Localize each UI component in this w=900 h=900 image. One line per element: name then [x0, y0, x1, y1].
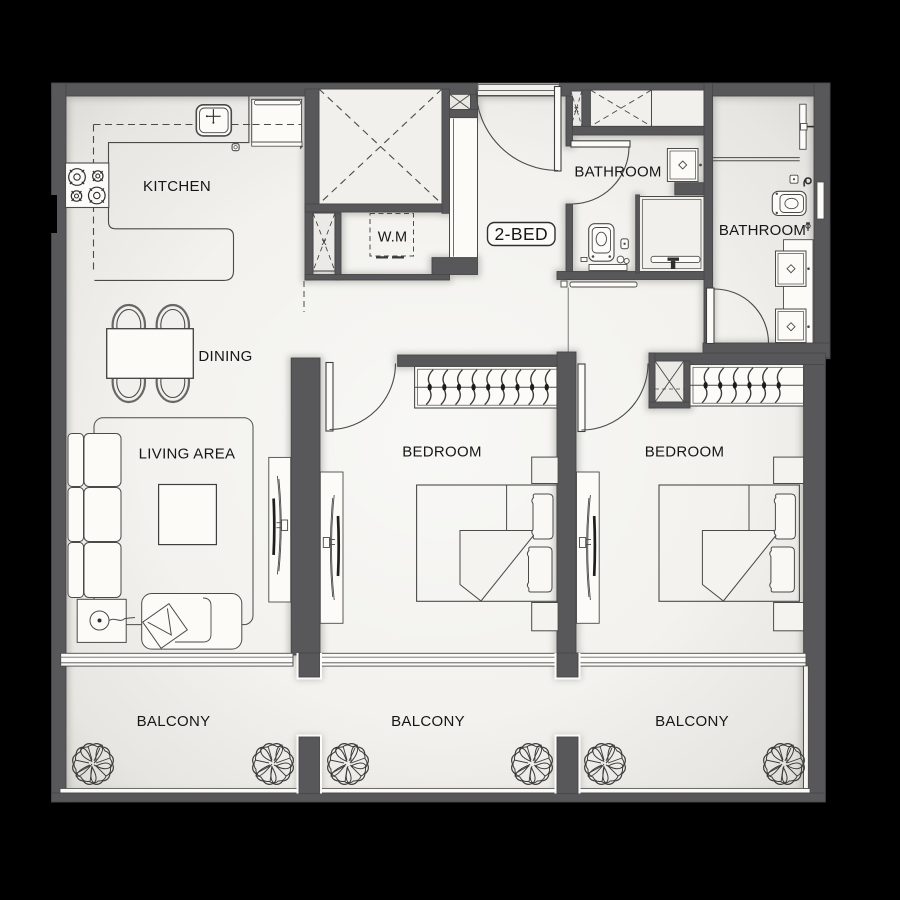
- svg-text:LIVING AREA: LIVING AREA: [139, 446, 236, 463]
- svg-text:x: x: [574, 104, 579, 114]
- svg-text:BALCONY: BALCONY: [391, 713, 465, 730]
- svg-text:BEDROOM: BEDROOM: [645, 444, 725, 461]
- svg-text:BEDROOM: BEDROOM: [402, 444, 482, 461]
- svg-text:W.M: W.M: [378, 230, 408, 246]
- svg-text:KITCHEN: KITCHEN: [143, 178, 211, 195]
- svg-text:BALCONY: BALCONY: [137, 713, 211, 730]
- svg-text:BATHROOM: BATHROOM: [719, 222, 806, 239]
- svg-text:x: x: [322, 237, 327, 248]
- svg-text:BALCONY: BALCONY: [655, 713, 729, 730]
- svg-text:BATHROOM: BATHROOM: [574, 164, 661, 181]
- svg-text:2-BED: 2-BED: [495, 224, 549, 244]
- svg-text:DINING: DINING: [198, 348, 252, 365]
